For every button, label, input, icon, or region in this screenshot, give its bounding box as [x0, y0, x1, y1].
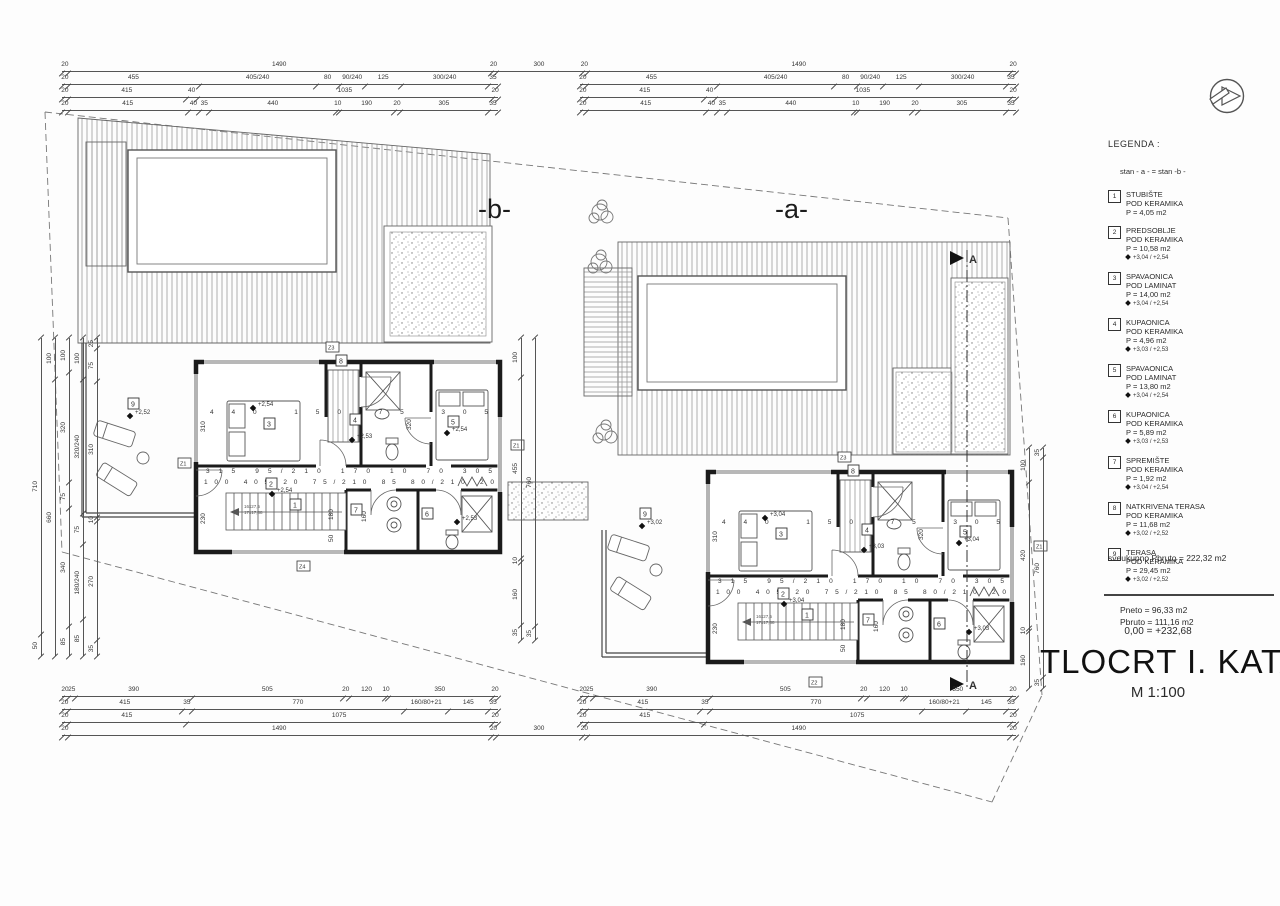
drawing-sheet: 16x27,5 17x17,88 [0, 0, 1280, 906]
legend-item-elevation: +3,02 / +2,52 [1126, 576, 1183, 585]
legend-item: 2 PREDSOBLJE POD KERAMIKA P = 10,58 m2 +… [1108, 226, 1278, 263]
legend-title: LEGENDA : [1108, 140, 1278, 149]
legend-item-floor: POD KERAMIKA [1126, 199, 1183, 208]
legend-item-elevation: +3,03 / +2,53 [1126, 346, 1183, 355]
dim-chain-left-4: 100320/24075180/24085 [72, 338, 84, 656]
legend-grand-total: sveukupno Pbruto = 222,32 m2 [1108, 553, 1226, 563]
legend-item-number-box: 5 [1108, 364, 1121, 377]
dim-chain-bottom-4: 2014902030020149020 [62, 724, 1016, 736]
dim-chain-bottom-1a: 2025390505201201035020 [580, 685, 1016, 697]
title-block: 0,00 = +232,68 TLOCRT I. KATA M 1:100 [1040, 626, 1276, 701]
legend-item-floor: POD KERAMIKA [1126, 511, 1205, 520]
section-label: A [969, 254, 977, 266]
legend-item-area: P = 1,92 m2 [1126, 474, 1183, 483]
legend-item-elevation: +3,03 / +2,53 [1126, 438, 1183, 447]
legend-item-floor: POD KERAMIKA [1126, 327, 1183, 336]
legend-item-name: SPREMIŠTE [1126, 456, 1183, 465]
legend-item-area: P = 10,58 m2 [1126, 244, 1183, 253]
building-unit-a [640, 465, 1015, 665]
legend-item-floor: POD KERAMIKA [1126, 419, 1183, 428]
legend-item-floor: POD KERAMIKA [1126, 465, 1183, 474]
dim-chain-bottom-1b: 2025390505201201035020 [62, 685, 498, 697]
legend-item: 3 SPAVAONICA POD LAMINAT P = 14,00 m2 +3… [1108, 272, 1278, 309]
svg-text:Z3: Z3 [328, 346, 334, 352]
legend-item-number-box: 1 [1108, 190, 1121, 203]
deck-strip [584, 268, 632, 396]
svg-text:+2,54: +2,54 [277, 488, 293, 494]
legend-item-area: P = 14,00 m2 [1126, 290, 1176, 299]
legend-item-floor: POD KERAMIKA [1126, 235, 1183, 244]
svg-text:+2,53: +2,53 [462, 516, 478, 522]
legend-item-name: SPAVAONICA [1126, 364, 1176, 373]
dim-chain-left-1: 71050 [30, 338, 42, 656]
svg-text:+3,02: +3,02 [647, 520, 663, 526]
unit-b-label: -b- [478, 194, 511, 225]
legend-item-area: P = 11,68 m2 [1126, 520, 1205, 529]
legend-item-elevation: +3,02 / +2,52 [1126, 530, 1205, 539]
dim-chain-top-3a: 2041540103520 [580, 86, 1016, 98]
svg-text:+3,03: +3,03 [869, 544, 885, 550]
dim-chain-top-4b: 204154035440101902030535 [62, 99, 498, 111]
dim-chain-bottom-2b: 2041535770160/80+2114535 [62, 698, 498, 710]
floor-plan-drawing: 16x27,5 17x17,88 [0, 0, 1280, 906]
legend-item-area: P = 4,05 m2 [1126, 208, 1183, 217]
legend-item-number-box: 4 [1108, 318, 1121, 331]
legend-item-floor: POD LAMINAT [1126, 281, 1176, 290]
svg-text:Z4: Z4 [299, 565, 305, 571]
building-unit-b [128, 355, 503, 555]
legend-item-area: P = 4,96 m2 [1126, 336, 1183, 345]
legend-pneto: Pneto = 96,33 m2 [1120, 604, 1278, 616]
legend-item-name: KUPAONICA [1126, 410, 1183, 419]
legend-item-number-box: 8 [1108, 502, 1121, 515]
drawing-title: TLOCRT I. KATA [1040, 643, 1276, 681]
legend-item-elevation: +3,04 / +2,54 [1126, 392, 1176, 401]
dim-chain-mid-2: 76035 [524, 338, 536, 640]
dim-chain-top-3b: 2041540103520 [62, 86, 498, 98]
dim-chain-top-4a: 204154035440101902030535 [580, 99, 1016, 111]
dim-chain-top-1: 2014902030020149020 [62, 60, 1016, 72]
legend-item: 5 SPAVAONICA POD LAMINAT P = 13,80 m2 +3… [1108, 364, 1278, 401]
legend-item: 7 SPREMIŠTE POD KERAMIKA P = 1,92 m2 +3,… [1108, 456, 1278, 493]
legend-item-area: P = 29,45 m2 [1126, 566, 1183, 575]
dim-chain-top-2b: 20455405/2408090/240125300/24035 [62, 73, 498, 85]
legend-item-elevation: +3,04 / +2,54 [1126, 484, 1183, 493]
legend-item-elevation: +3,04 / +2,54 [1126, 300, 1176, 309]
legend-item: 4 KUPAONICA POD KERAMIKA P = 4,96 m2 +3,… [1108, 318, 1278, 355]
svg-text:+3,04: +3,04 [789, 598, 805, 604]
dim-chain-left-5: 25753101027035 [86, 338, 98, 656]
svg-text:+2,53: +2,53 [357, 434, 373, 440]
legend-items: 1 STUBIŠTE POD KERAMIKA P = 4,05 m2 2 PR… [1108, 190, 1278, 585]
table-icon [650, 564, 662, 576]
svg-text:+2,54: +2,54 [258, 402, 274, 408]
dim-chain-top-2a: 20455405/2408090/240125300/24035 [580, 73, 1016, 85]
drawing-scale: M 1:100 [1040, 684, 1276, 701]
legend-item-number-box: 2 [1108, 226, 1121, 239]
dim-chain-left-2: 100660 [44, 338, 56, 656]
unit-a-label: -a- [775, 194, 808, 225]
pool [638, 276, 846, 390]
legend-item: 6 KUPAONICA POD KERAMIKA P = 5,89 m2 +3,… [1108, 410, 1278, 447]
svg-text:+2,54: +2,54 [452, 427, 468, 433]
dim-chain-right-1: 10042010160 [1018, 448, 1030, 688]
legend-item-name: PREDSOBLJE [1126, 226, 1183, 235]
legend-item: 8 NATKRIVENA TERASA POD KERAMIKA P = 11,… [1108, 502, 1278, 539]
svg-text:Z3: Z3 [840, 456, 846, 462]
dim-chain-mid-1: 1004551016035 [510, 338, 522, 640]
dim-chain-bottom-3b: 20415107520 [62, 711, 498, 723]
legend-item-name: KUPAONICA [1126, 318, 1183, 327]
datum-elevation: 0,00 = +232,68 [1040, 626, 1276, 637]
dim-chain-bottom-3a: 20415107520 [580, 711, 1016, 723]
legend-item: 1 STUBIŠTE POD KERAMIKA P = 4,05 m2 [1108, 190, 1278, 217]
legend-divider [1104, 594, 1274, 596]
svg-text:+3,04: +3,04 [964, 537, 980, 543]
table-icon [137, 452, 149, 464]
pool [128, 150, 336, 272]
legend-item-floor: POD LAMINAT [1126, 373, 1176, 382]
legend-item-number-box: 7 [1108, 456, 1121, 469]
legend-item-name: SPAVAONICA [1126, 272, 1176, 281]
svg-text:+3,03: +3,03 [974, 626, 990, 632]
gravel-area [390, 232, 486, 336]
dim-chain-left-3: 1003207534085 [58, 338, 70, 656]
svg-text:+3,04: +3,04 [770, 512, 786, 518]
legend-note: stan - a - = stan -b - [1120, 167, 1278, 176]
svg-text:+2,52: +2,52 [135, 410, 151, 416]
legend-item-number-box: 6 [1108, 410, 1121, 423]
architect-logo-icon [1210, 80, 1244, 113]
svg-text:Z1: Z1 [180, 462, 186, 468]
legend-item-area: P = 5,89 m2 [1126, 428, 1183, 437]
deck-strip [86, 142, 126, 266]
legend-item-elevation: +3,04 / +2,54 [1126, 254, 1183, 263]
dim-chain-bottom-2a: 2041535770160/80+2114535 [580, 698, 1016, 710]
legend-item-name: NATKRIVENA TERASA [1126, 502, 1205, 511]
legend-item-number-box: 3 [1108, 272, 1121, 285]
legend-item-name: STUBIŠTE [1126, 190, 1183, 199]
legend-item-area: P = 13,80 m2 [1126, 382, 1176, 391]
